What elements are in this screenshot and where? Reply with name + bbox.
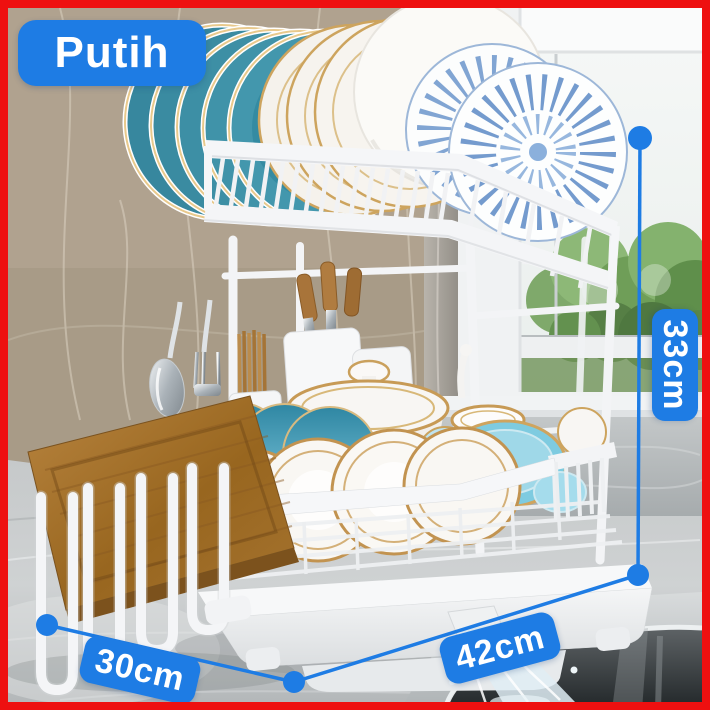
window-blind: [520, 8, 702, 52]
dimension-dot: [627, 564, 649, 586]
product-photo: Putih 33cm 42cm 30cm: [0, 0, 710, 710]
dimension-line-height: [638, 138, 640, 575]
dimension-dot: [283, 671, 305, 693]
kitchen-scene: [8, 8, 702, 702]
dimension-dot: [36, 614, 58, 636]
variant-badge: Putih: [18, 20, 206, 86]
height-label: 33cm: [652, 309, 698, 421]
dimension-dot: [628, 126, 652, 150]
